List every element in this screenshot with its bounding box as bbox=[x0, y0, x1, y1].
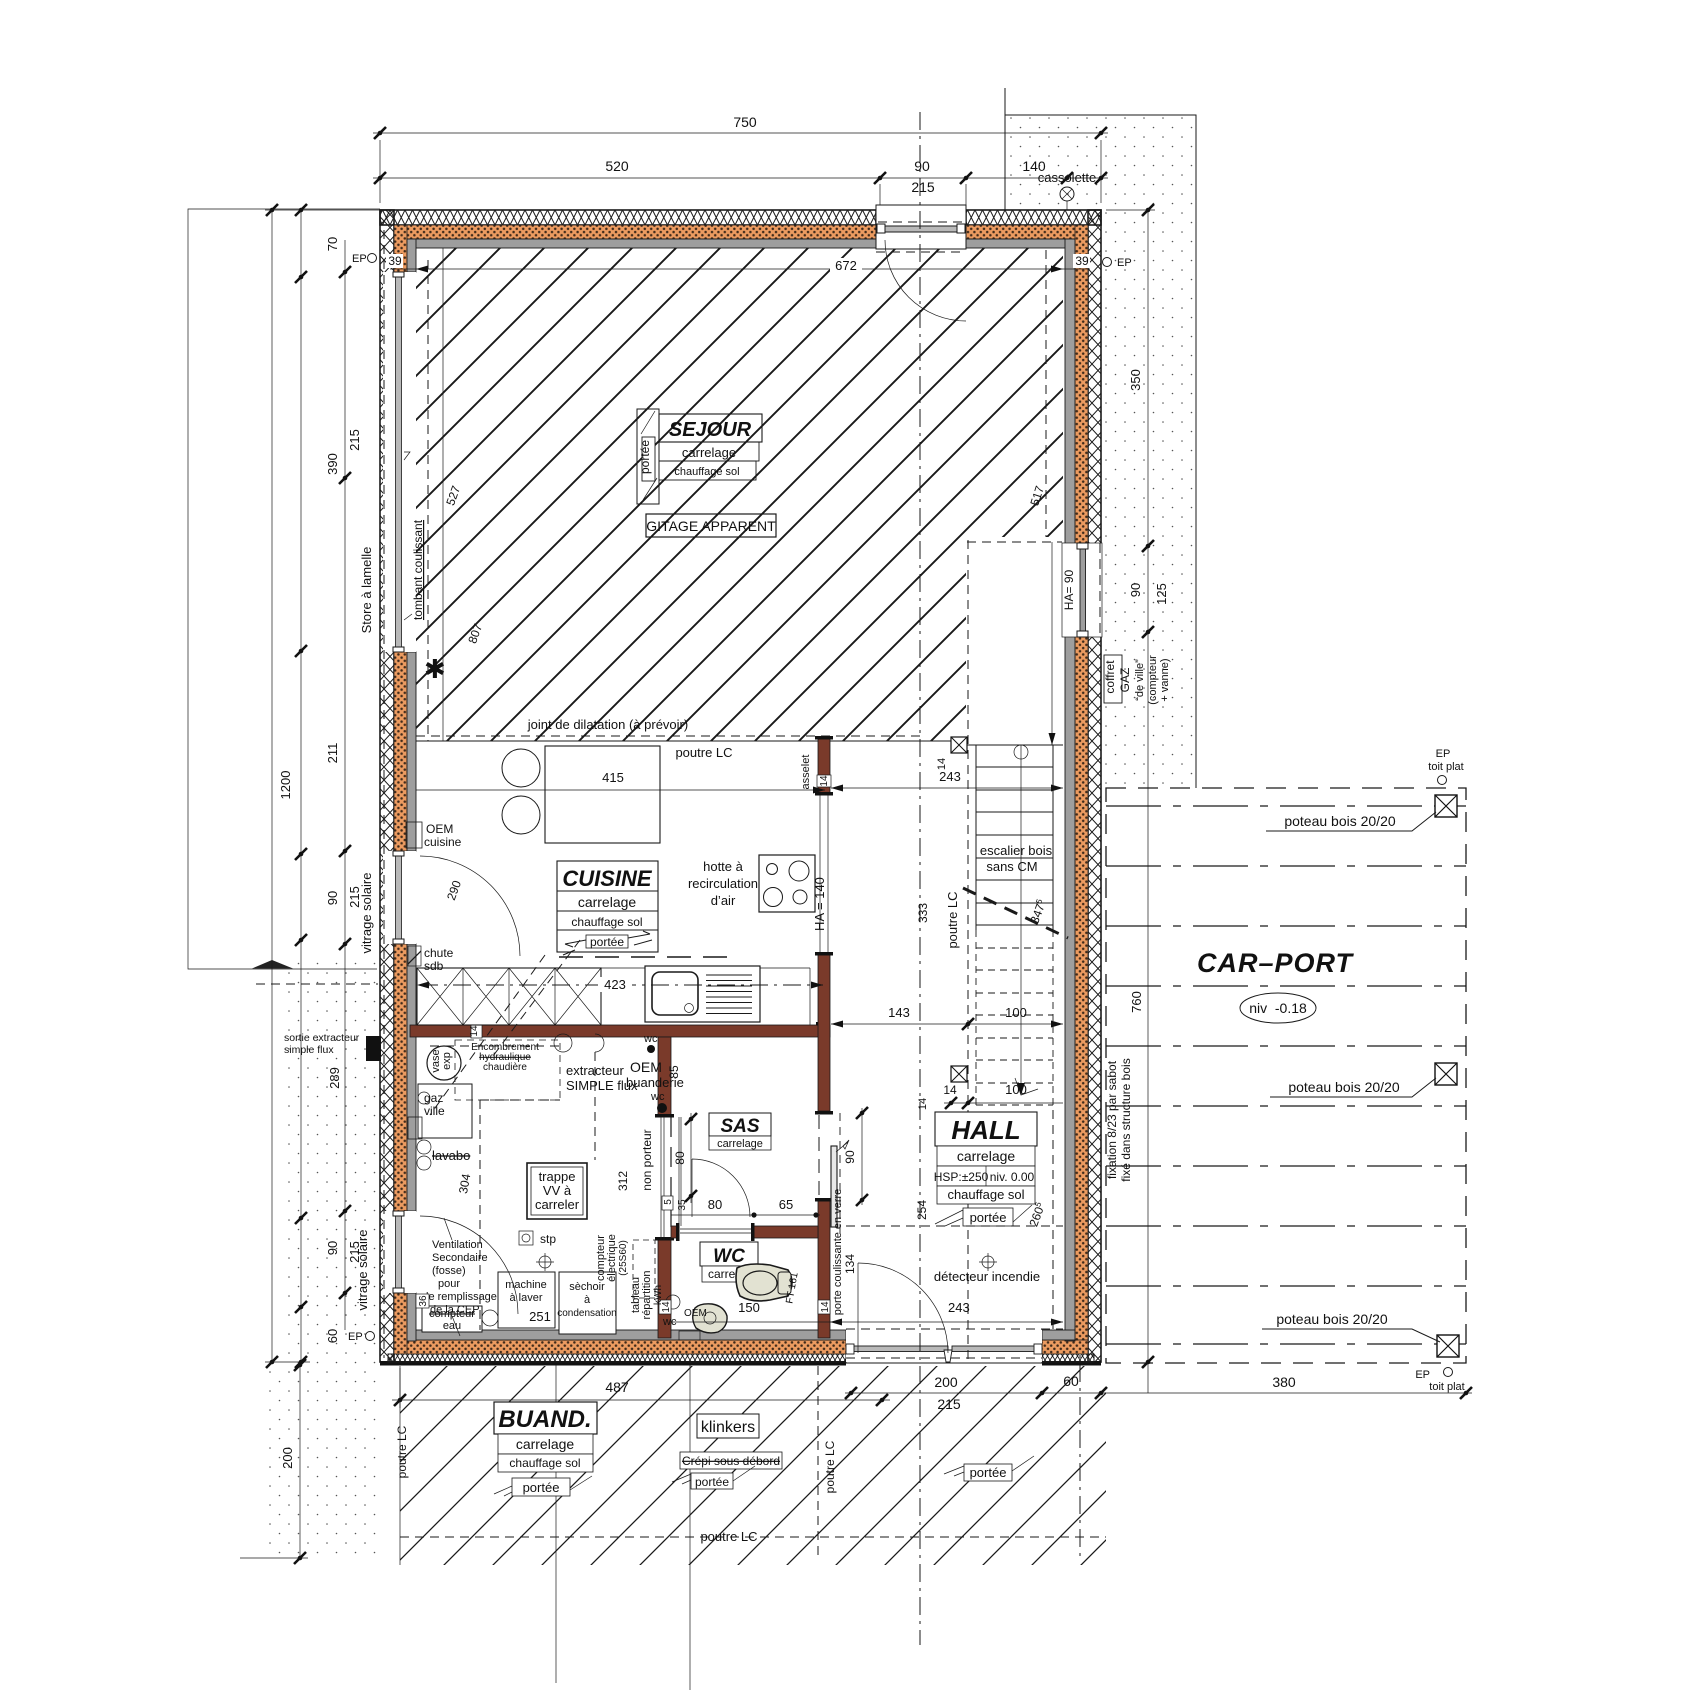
svg-text:(25S60): (25S60) bbox=[618, 1240, 629, 1276]
svg-text:stp: stp bbox=[540, 1232, 556, 1246]
svg-text:HSP:±250: HSP:±250 bbox=[934, 1170, 989, 1184]
svg-text:14: 14 bbox=[469, 1025, 480, 1037]
svg-text:OEM: OEM bbox=[426, 822, 453, 836]
svg-text:d’air: d’air bbox=[711, 893, 736, 908]
svg-text:200: 200 bbox=[934, 1374, 958, 1390]
svg-text:90: 90 bbox=[1128, 583, 1143, 597]
svg-text:condensation: condensation bbox=[557, 1308, 617, 1319]
svg-text:90: 90 bbox=[914, 158, 930, 174]
svg-text:70: 70 bbox=[325, 237, 340, 251]
svg-text:423: 423 bbox=[604, 977, 626, 992]
svg-text:carrelage: carrelage bbox=[682, 445, 736, 460]
svg-text:36: 36 bbox=[418, 1295, 429, 1307]
svg-text:portée: portée bbox=[970, 1210, 1007, 1225]
svg-text:215: 215 bbox=[937, 1396, 961, 1412]
svg-text:143: 143 bbox=[888, 1005, 910, 1020]
svg-text:125: 125 bbox=[1154, 583, 1169, 605]
svg-text:134: 134 bbox=[843, 1254, 857, 1274]
svg-text:poteau bois 20/20: poteau bois 20/20 bbox=[1284, 813, 1396, 829]
svg-text:chauffage sol: chauffage sol bbox=[571, 915, 642, 929]
svg-text:répartition: répartition bbox=[641, 1271, 653, 1320]
svg-text:vitrage solaire: vitrage solaire bbox=[359, 873, 374, 954]
svg-text:OEM: OEM bbox=[684, 1308, 707, 1319]
svg-text:joint de dilatation (à prévoir: joint de dilatation (à prévoir) bbox=[527, 717, 688, 732]
svg-text:14: 14 bbox=[820, 1301, 831, 1313]
svg-text:520: 520 bbox=[605, 158, 629, 174]
svg-text:sans CM: sans CM bbox=[986, 859, 1037, 874]
svg-text:14: 14 bbox=[943, 1083, 957, 1097]
svg-text:wc: wc bbox=[650, 1091, 665, 1103]
svg-text:poteau bois 20/20: poteau bois 20/20 bbox=[1276, 1311, 1388, 1327]
svg-text:eau: eau bbox=[443, 1320, 461, 1332]
svg-text:243: 243 bbox=[948, 1300, 970, 1315]
svg-text:chauffage sol: chauffage sol bbox=[947, 1187, 1024, 1202]
svg-text:poutre LC: poutre LC bbox=[395, 1425, 409, 1478]
svg-text:tombant coulissant: tombant coulissant bbox=[411, 519, 425, 620]
svg-text:90: 90 bbox=[325, 891, 340, 905]
svg-text:“de ville”: “de ville” bbox=[1134, 659, 1146, 701]
svg-text:cuisine: cuisine bbox=[424, 835, 462, 849]
svg-text:EP: EP bbox=[348, 1331, 363, 1343]
svg-text:poteau bois 20/20: poteau bois 20/20 bbox=[1288, 1079, 1400, 1095]
svg-text:non porteur: non porteur bbox=[640, 1129, 654, 1190]
svg-text:EP: EP bbox=[1436, 748, 1451, 760]
svg-text:niv. 0.00: niv. 0.00 bbox=[990, 1170, 1035, 1184]
svg-text:portée: portée bbox=[523, 1480, 560, 1495]
svg-text:380: 380 bbox=[1272, 1374, 1296, 1390]
svg-text:hotte à: hotte à bbox=[703, 859, 744, 874]
svg-text:HA= 90: HA= 90 bbox=[1062, 569, 1076, 610]
svg-text:80: 80 bbox=[673, 1151, 687, 1165]
svg-text:487: 487 bbox=[605, 1379, 629, 1395]
svg-text:Ventilation: Ventilation bbox=[432, 1239, 483, 1251]
svg-text:sortie extracteur: sortie extracteur bbox=[284, 1032, 360, 1044]
svg-text:350: 350 bbox=[1128, 369, 1143, 391]
svg-text:EP: EP bbox=[1415, 1369, 1430, 1381]
svg-text:poutre LC: poutre LC bbox=[700, 1529, 757, 1544]
svg-text:portée: portée bbox=[695, 1475, 729, 1489]
svg-text:à: à bbox=[584, 1294, 591, 1306]
svg-text:HALL: HALL bbox=[951, 1115, 1020, 1145]
svg-text:100: 100 bbox=[1005, 1005, 1027, 1020]
svg-text:14: 14 bbox=[819, 775, 830, 787]
svg-text:CUISINE: CUISINE bbox=[562, 866, 653, 891]
svg-text:BUAND.: BUAND. bbox=[498, 1406, 591, 1433]
svg-text:672: 672 bbox=[835, 258, 857, 273]
svg-text:251: 251 bbox=[529, 1309, 551, 1324]
svg-text:150: 150 bbox=[738, 1300, 760, 1315]
svg-text:✱: ✱ bbox=[424, 654, 446, 684]
svg-text:électrique: électrique bbox=[606, 1234, 618, 1282]
svg-text:390: 390 bbox=[325, 453, 340, 475]
svg-text:chauffage sol: chauffage sol bbox=[674, 466, 739, 478]
svg-text:OEM: OEM bbox=[630, 1059, 662, 1075]
svg-text:machine: machine bbox=[505, 1279, 547, 1291]
svg-text:détecteur incendie: détecteur incendie bbox=[934, 1269, 1040, 1284]
svg-text:WC: WC bbox=[713, 1246, 745, 1267]
svg-text:Store à lamelle: Store à lamelle bbox=[359, 547, 374, 634]
svg-text:90: 90 bbox=[325, 1241, 340, 1255]
svg-text:CAR–PORT: CAR–PORT bbox=[1197, 948, 1355, 978]
svg-text:243: 243 bbox=[939, 769, 961, 784]
svg-text:simple flux: simple flux bbox=[284, 1044, 334, 1056]
svg-text:Secondaire: Secondaire bbox=[432, 1252, 488, 1264]
svg-text:chute: chute bbox=[424, 946, 454, 960]
svg-text:211: 211 bbox=[325, 743, 340, 764]
svg-text:sdb: sdb bbox=[424, 959, 444, 973]
svg-text:750: 750 bbox=[733, 114, 757, 130]
svg-text:GAZ: GAZ bbox=[1118, 668, 1132, 693]
svg-text:de la CEP: de la CEP bbox=[430, 1304, 480, 1316]
svg-text:poutre LC: poutre LC bbox=[945, 891, 960, 948]
svg-text:poutre LC: poutre LC bbox=[823, 1440, 837, 1493]
svg-text:escalier bois: escalier bois bbox=[980, 843, 1053, 858]
svg-text:carrelage: carrelage bbox=[957, 1148, 1016, 1164]
svg-text:portée: portée bbox=[590, 935, 624, 949]
svg-text:fixation 8/23 par sabot: fixation 8/23 par sabot bbox=[1105, 1060, 1119, 1179]
svg-text:coffret: coffret bbox=[1103, 660, 1117, 694]
svg-text:wc: wc bbox=[643, 1033, 658, 1045]
svg-text:415: 415 bbox=[602, 770, 624, 785]
svg-text:niv -0.18: niv -0.18 bbox=[1249, 1000, 1307, 1016]
svg-text:chauffage sol: chauffage sol bbox=[509, 1456, 580, 1470]
svg-text:toit plat: toit plat bbox=[1428, 761, 1463, 773]
svg-text:toit plat: toit plat bbox=[1429, 1381, 1464, 1393]
svg-text:Crépi sous débord: Crépi sous débord bbox=[682, 1454, 780, 1468]
svg-text:80: 80 bbox=[708, 1197, 722, 1212]
svg-text:GITAGE APPARENT: GITAGE APPARENT bbox=[646, 518, 776, 534]
svg-text:60: 60 bbox=[325, 1329, 340, 1343]
svg-text:39: 39 bbox=[1075, 254, 1089, 268]
svg-text:buanderie: buanderie bbox=[626, 1075, 684, 1090]
svg-text:porte coulissante en verre: porte coulissante en verre bbox=[832, 1189, 844, 1316]
svg-text:VV à: VV à bbox=[543, 1183, 572, 1198]
svg-text:760: 760 bbox=[1129, 991, 1144, 1013]
svg-text:312: 312 bbox=[616, 1171, 630, 1191]
svg-text:poutre LC: poutre LC bbox=[675, 745, 732, 760]
svg-text:à laver: à laver bbox=[509, 1292, 542, 1304]
svg-text:EP: EP bbox=[1117, 257, 1132, 269]
svg-text:60: 60 bbox=[1063, 1373, 1079, 1389]
svg-text:trappe: trappe bbox=[539, 1169, 576, 1184]
svg-text:39: 39 bbox=[388, 254, 402, 268]
svg-text:recirculation: recirculation bbox=[688, 876, 758, 891]
svg-text:le remplissage: le remplissage bbox=[426, 1291, 497, 1303]
svg-text:200: 200 bbox=[280, 1447, 295, 1469]
svg-text:+ vanne): + vanne) bbox=[1159, 658, 1171, 701]
svg-text:fixé dans structure bois: fixé dans structure bois bbox=[1119, 1058, 1133, 1181]
svg-text:carreler: carreler bbox=[535, 1197, 580, 1212]
svg-text:carrelage: carrelage bbox=[516, 1436, 575, 1452]
svg-text:SEJOUR: SEJOUR bbox=[669, 419, 752, 441]
svg-text:254: 254 bbox=[915, 1200, 929, 1220]
svg-text:100: 100 bbox=[1005, 1082, 1027, 1097]
svg-text:asselet: asselet bbox=[800, 755, 812, 790]
svg-text:klinkers: klinkers bbox=[701, 1419, 755, 1436]
svg-text:EP: EP bbox=[352, 253, 367, 265]
svg-text:(compteur: (compteur bbox=[1147, 655, 1159, 705]
svg-text:lavabo: lavabo bbox=[432, 1148, 470, 1163]
svg-text:portée: portée bbox=[970, 1465, 1007, 1480]
svg-text:(fosse): (fosse) bbox=[432, 1265, 466, 1277]
svg-text:289: 289 bbox=[327, 1067, 342, 1089]
svg-text:333: 333 bbox=[916, 903, 930, 923]
svg-text:vitrage solaire: vitrage solaire bbox=[355, 1230, 370, 1311]
svg-text:portée: portée bbox=[638, 440, 652, 474]
svg-text:exp: exp bbox=[441, 1052, 453, 1070]
svg-text:5: 5 bbox=[663, 1199, 674, 1205]
svg-text:chaudière: chaudière bbox=[483, 1062, 527, 1073]
svg-text:sèchoir: sèchoir bbox=[569, 1281, 605, 1293]
svg-text:SAS: SAS bbox=[720, 1116, 759, 1137]
svg-text:carrelage: carrelage bbox=[578, 894, 637, 910]
svg-text:90: 90 bbox=[843, 1150, 857, 1164]
svg-text:65: 65 bbox=[779, 1197, 793, 1212]
svg-text:pour: pour bbox=[438, 1278, 460, 1290]
svg-text:carrelage: carrelage bbox=[717, 1138, 763, 1150]
svg-text:1200: 1200 bbox=[278, 771, 293, 800]
svg-text:215: 215 bbox=[347, 429, 362, 451]
svg-text:215: 215 bbox=[911, 179, 935, 195]
svg-text:ville: ville bbox=[424, 1104, 445, 1118]
svg-text:14: 14 bbox=[917, 1098, 929, 1110]
